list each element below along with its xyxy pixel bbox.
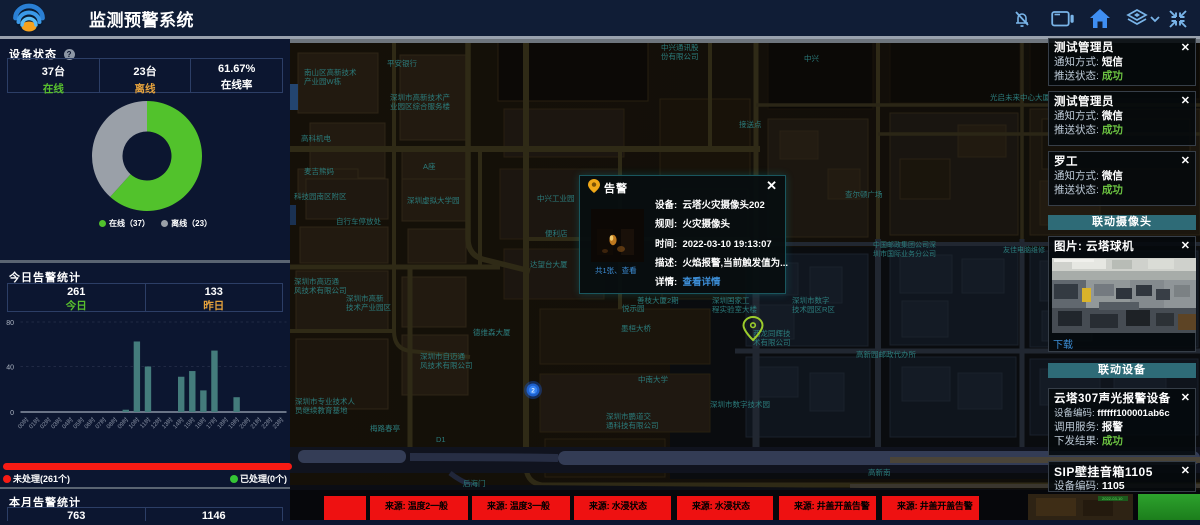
svg-text:深圳市专业技术人: 深圳市专业技术人 <box>295 396 355 406</box>
svg-text:10时: 10时 <box>127 416 142 431</box>
svg-text:便利店: 便利店 <box>545 228 568 238</box>
svg-text:程实验室大楼: 程实验室大楼 <box>712 304 757 314</box>
svg-text:深圳市鹏道交: 深圳市鹏道交 <box>606 411 651 421</box>
svg-text:高新园邮政代办所: 高新园邮政代办所 <box>856 349 916 359</box>
svg-text:技术产业园区: 技术产业园区 <box>346 302 391 312</box>
svg-text:悦示园: 悦示园 <box>622 303 645 313</box>
svg-text:业园区综合服务楼: 业园区综合服务楼 <box>390 101 450 111</box>
svg-text:06时: 06时 <box>82 416 97 431</box>
svg-text:自行车停放处: 自行车停放处 <box>336 216 381 226</box>
svg-text:03时: 03时 <box>49 416 64 431</box>
svg-text:高科机电: 高科机电 <box>301 133 331 143</box>
svg-text:中南大学: 中南大学 <box>638 374 668 384</box>
svg-text:中兴: 中兴 <box>804 53 819 63</box>
svg-text:05时: 05时 <box>71 416 86 431</box>
svg-text:麦吉熊妈: 麦吉熊妈 <box>304 166 334 176</box>
svg-text:18时: 18时 <box>215 416 230 431</box>
svg-text:17时: 17时 <box>204 416 219 431</box>
svg-text:中兴通讯股: 中兴通讯股 <box>661 42 699 52</box>
svg-text:A座: A座 <box>423 161 436 171</box>
svg-text:40: 40 <box>6 365 14 372</box>
svg-text:09时: 09时 <box>116 416 131 431</box>
svg-text:2: 2 <box>531 387 535 394</box>
svg-text:后海门: 后海门 <box>463 478 486 488</box>
svg-text:技术园区R区: 技术园区R区 <box>792 304 835 314</box>
svg-text:查尔顿广场: 查尔顿广场 <box>845 189 883 199</box>
svg-text:风技术有限公司: 风技术有限公司 <box>294 285 347 295</box>
svg-text:圳市国际业务分公司: 圳市国际业务分公司 <box>873 249 936 258</box>
svg-text:产业园W栋: 产业园W栋 <box>304 76 342 86</box>
svg-text:墨桓大桥: 墨桓大桥 <box>621 323 651 333</box>
svg-text:达望台大厦: 达望台大厦 <box>530 259 568 269</box>
svg-text:深圳市高迈通: 深圳市高迈通 <box>294 276 339 286</box>
svg-text:2022-03-10: 2022-03-10 <box>1102 496 1123 501</box>
svg-text:02时: 02时 <box>38 416 53 431</box>
svg-text:22时: 22时 <box>260 416 275 431</box>
svg-text:风技术有限公司: 风技术有限公司 <box>420 360 473 370</box>
svg-text:07时: 07时 <box>93 416 108 431</box>
svg-text:深圳市自迈通: 深圳市自迈通 <box>420 351 465 361</box>
svg-text:12时: 12时 <box>149 416 164 431</box>
svg-text:通科技有限公司: 通科技有限公司 <box>606 420 659 430</box>
svg-text:深圳市数字: 深圳市数字 <box>792 295 830 305</box>
svg-text:光启未来中心大厦: 光启未来中心大厦 <box>990 92 1050 102</box>
svg-text:21时: 21时 <box>249 416 264 431</box>
svg-text:11时: 11时 <box>138 416 152 430</box>
svg-text:深圳市高新技术产: 深圳市高新技术产 <box>390 92 450 102</box>
svg-text:深圳国家工: 深圳国家工 <box>712 295 750 305</box>
svg-text:术有限公司: 术有限公司 <box>753 337 791 347</box>
svg-text:04时: 04时 <box>60 416 75 431</box>
svg-text:01时: 01时 <box>27 416 42 431</box>
svg-text:16时: 16时 <box>193 416 208 431</box>
svg-text:D1: D1 <box>436 435 446 444</box>
svg-text:15时: 15时 <box>182 416 197 431</box>
svg-text:20时: 20时 <box>237 416 252 431</box>
svg-text:接送点: 接送点 <box>739 119 762 129</box>
svg-text:梅路春亭: 梅路春亭 <box>370 423 400 433</box>
svg-text:80: 80 <box>6 320 14 327</box>
svg-text:德维森大厦: 德维森大厦 <box>473 327 511 337</box>
svg-text:深圳虚拟大学园: 深圳虚拟大学园 <box>407 195 460 205</box>
svg-text:08时: 08时 <box>104 416 119 431</box>
svg-text:友佳电脑维修: 友佳电脑维修 <box>1003 245 1045 254</box>
svg-text:平安银行: 平安银行 <box>387 58 417 68</box>
svg-text:中国邮政集团公司深: 中国邮政集团公司深 <box>873 240 936 249</box>
svg-text:0: 0 <box>10 410 14 417</box>
svg-text:科技园南区附区: 科技园南区附区 <box>294 191 347 201</box>
svg-text:19时: 19时 <box>226 416 241 431</box>
svg-text:南山区高新技术: 南山区高新技术 <box>304 67 357 77</box>
svg-text:13时: 13时 <box>160 416 175 431</box>
svg-text:23时: 23时 <box>271 416 286 431</box>
svg-text:中兴工业园: 中兴工业园 <box>537 193 575 203</box>
svg-text:深圳市数字技术园: 深圳市数字技术园 <box>710 399 770 409</box>
svg-text:员继续教育基地: 员继续教育基地 <box>295 405 348 415</box>
svg-text:深圳市高新: 深圳市高新 <box>346 293 384 303</box>
svg-text:00时: 00时 <box>16 416 31 431</box>
svg-text:14时: 14时 <box>171 416 186 431</box>
svg-text:份有限公司: 份有限公司 <box>661 51 699 61</box>
svg-text:高新南: 高新南 <box>868 467 891 477</box>
